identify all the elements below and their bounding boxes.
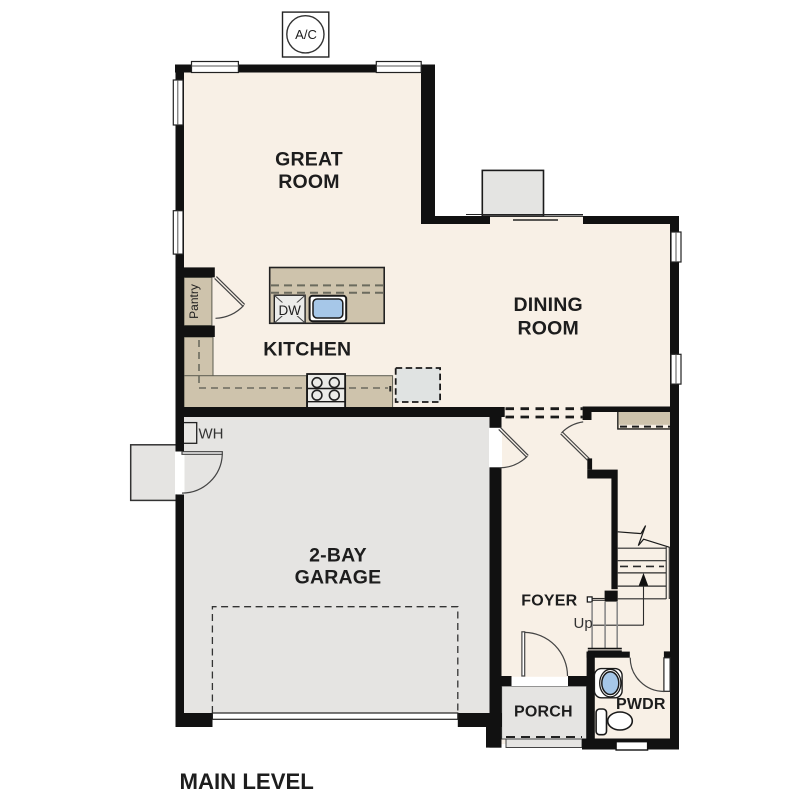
svg-text:DW: DW (278, 303, 301, 318)
svg-text:DINING: DINING (513, 294, 582, 316)
svg-text:Pantry: Pantry (187, 284, 201, 319)
svg-text:GREAT: GREAT (275, 148, 343, 170)
svg-text:WH: WH (199, 426, 224, 443)
svg-text:ROOM: ROOM (517, 317, 578, 339)
svg-text:PWDR: PWDR (616, 696, 666, 713)
svg-text:A/C: A/C (295, 27, 317, 42)
svg-text:KITCHEN: KITCHEN (263, 338, 351, 360)
svg-text:MAIN LEVEL: MAIN LEVEL (180, 769, 314, 794)
svg-text:FOYER: FOYER (521, 592, 577, 609)
svg-text:2-BAY: 2-BAY (309, 545, 367, 567)
svg-text:ROOM: ROOM (278, 171, 339, 193)
svg-text:PORCH: PORCH (514, 703, 573, 720)
svg-text:GARAGE: GARAGE (295, 566, 382, 588)
svg-text:Up: Up (574, 615, 593, 632)
